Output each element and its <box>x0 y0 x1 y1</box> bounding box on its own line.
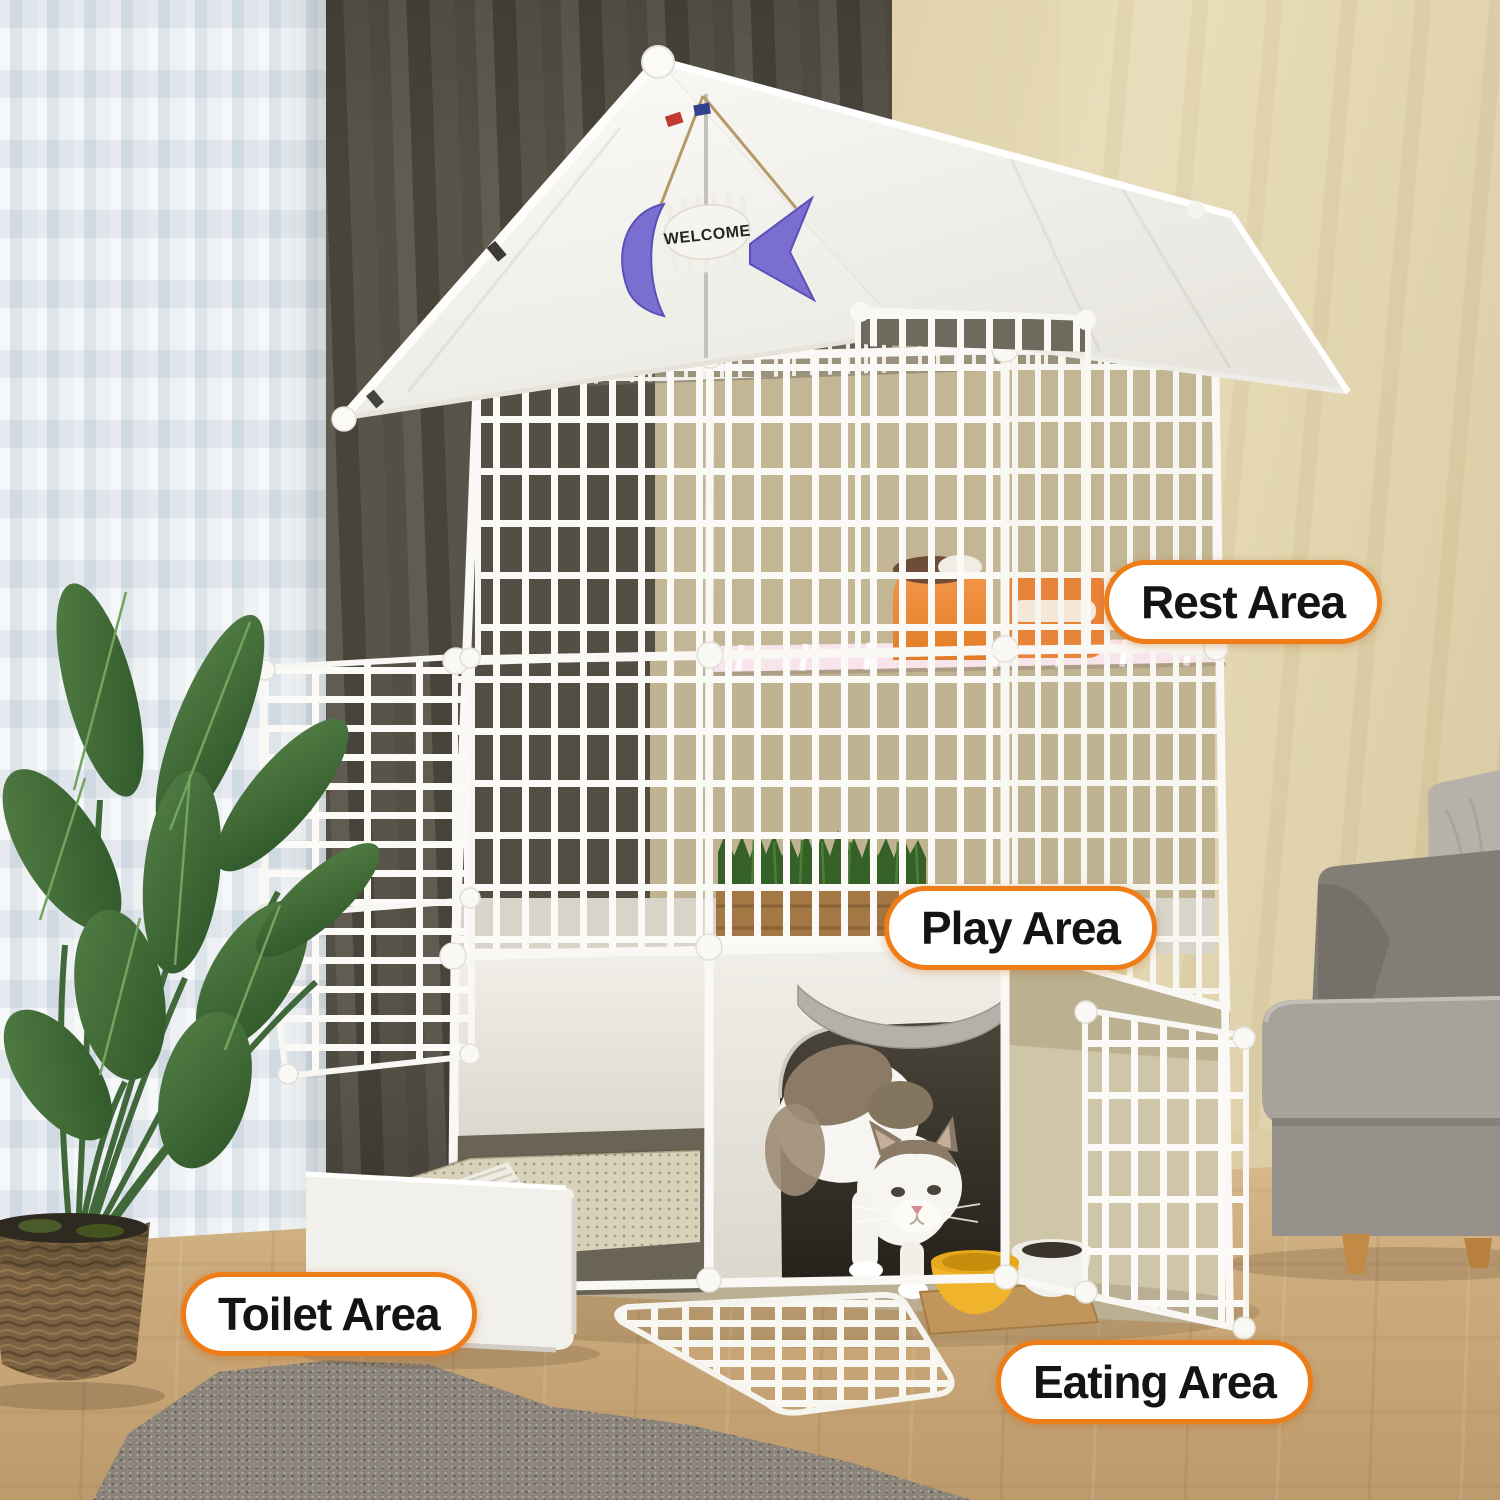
wire-panel <box>455 655 710 958</box>
open-door-panel <box>1085 1010 1246 1330</box>
label-rest-area: Rest Area <box>1104 560 1382 644</box>
wire-panel <box>478 355 710 662</box>
cat-cage <box>255 334 1260 1413</box>
label-eating-area: Eating Area <box>996 1340 1313 1424</box>
label-toilet-area: Toilet Area <box>181 1272 477 1356</box>
roof-apex-ball <box>642 46 674 78</box>
product-image: WELCOME Rest Area Play Area Toilet Area … <box>0 0 1500 1500</box>
grid-floor-mat <box>617 1295 951 1413</box>
litter-enclosure-panel <box>455 952 710 1144</box>
sofa <box>1225 770 1500 1281</box>
label-play-area: Play Area <box>884 886 1157 970</box>
